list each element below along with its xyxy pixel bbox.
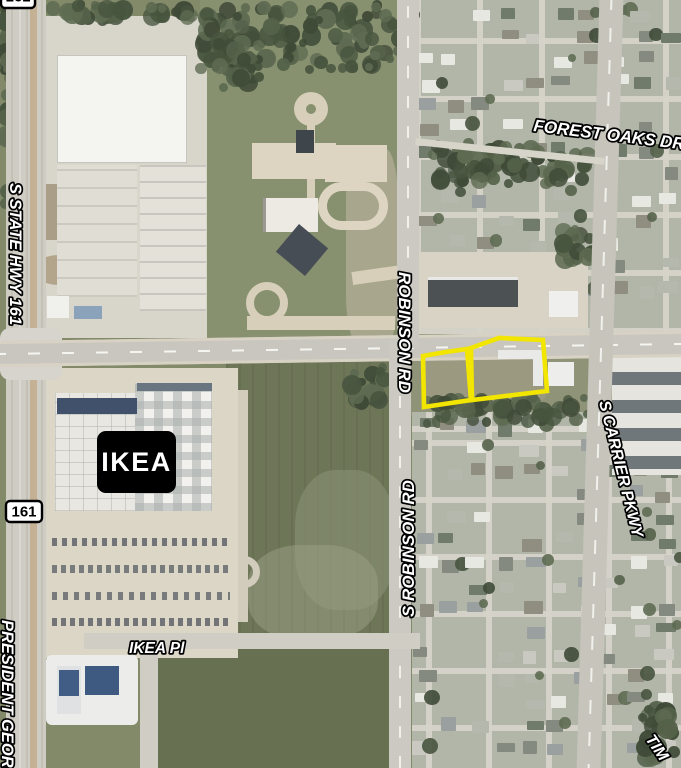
tree-canopy [535, 671, 544, 680]
tree-canopy [614, 575, 624, 585]
parking-car-row [52, 538, 230, 546]
house-roof [654, 649, 674, 660]
tree-canopy [46, 1, 60, 15]
tree-canopy [571, 225, 580, 234]
lane-dashes [399, 340, 401, 768]
house-roof [523, 651, 537, 664]
tree-canopy [575, 172, 589, 186]
lane-dashes [407, 0, 409, 348]
parking-car-row [52, 618, 230, 626]
tree-canopy [559, 717, 571, 729]
tree-canopy [485, 94, 494, 103]
tree-canopy [465, 116, 480, 131]
tree-canopy [254, 72, 264, 82]
hotel-blue-roof [59, 670, 79, 696]
house-roof [523, 741, 537, 754]
tree-strip-northwest [40, 0, 200, 26]
small-building [47, 296, 69, 318]
house-roof [524, 601, 543, 614]
tree-canopy [263, 18, 279, 34]
house-roof [503, 119, 522, 128]
tree-canopy [668, 746, 680, 758]
warehouse-building [57, 55, 187, 163]
tree-canopy [549, 168, 568, 187]
tree-canopy [431, 170, 451, 190]
house-roof [631, 556, 648, 569]
road-ikea-pl [84, 633, 420, 649]
house-roof [499, 557, 513, 571]
highway-161-corridor [6, 0, 46, 768]
tree-canopy [436, 77, 448, 89]
tree-canopy [362, 11, 373, 22]
campus-parking [252, 143, 336, 179]
tree-canopy [640, 666, 655, 681]
house-roof [659, 539, 676, 549]
tree-canopy [180, 10, 195, 25]
house-roof [497, 743, 515, 752]
house-roof [635, 625, 649, 637]
house-roof [438, 533, 452, 543]
house-roof [419, 670, 437, 682]
house-roof [661, 33, 681, 44]
house-roof [441, 54, 455, 65]
tree-canopy [482, 439, 494, 451]
house-roof [656, 515, 675, 524]
house-roof [448, 100, 464, 114]
townhouse-complex [612, 338, 681, 475]
tree-canopy [247, 64, 256, 73]
tree-canopy [462, 405, 475, 418]
tree-canopy [483, 582, 495, 594]
house-roof [630, 485, 643, 496]
tree-canopy [650, 144, 664, 158]
tree-canopy [672, 620, 681, 630]
house-roof [519, 445, 539, 456]
tree-canopy [647, 212, 657, 222]
house-roof [526, 34, 540, 43]
tree-canopy [504, 179, 513, 188]
house-roof [501, 8, 515, 18]
campus-parking [325, 145, 387, 182]
house-roof [522, 539, 542, 552]
lane-dashes [0, 343, 681, 355]
house-roof [630, 11, 650, 22]
house-roof [584, 51, 599, 64]
tree-canopy [340, 2, 359, 21]
house-roof [547, 744, 564, 756]
house-roof [441, 717, 456, 731]
house-roof [471, 463, 485, 474]
ikea-roof-edge [137, 383, 212, 391]
tree-canopy [386, 55, 395, 64]
tree-canopy [370, 51, 380, 61]
ikea-building-east [135, 383, 212, 511]
tree-canopy [542, 554, 554, 566]
house-roof [439, 601, 457, 613]
tree-canopy [424, 690, 440, 706]
tree-canopy [561, 122, 570, 131]
house-roof [552, 466, 569, 476]
highway-median [30, 0, 37, 768]
parking-car-row [52, 592, 230, 600]
house-roof [504, 80, 523, 92]
house-roof [632, 196, 651, 207]
house-roof [450, 235, 464, 246]
house-roof [527, 627, 545, 639]
tree-canopy [519, 162, 540, 183]
small-building [549, 291, 578, 317]
tree-canopy [98, 0, 116, 18]
tree-canopy [423, 419, 431, 427]
campus-building-white [263, 198, 318, 232]
house-roof [472, 721, 489, 732]
house-roof [551, 76, 571, 86]
ikea-loading-band [57, 398, 137, 414]
satellite-map[interactable]: S STATE HWY 161 PRESIDENT GEORGE ROBINSO… [0, 0, 681, 768]
tree-canopy [568, 54, 577, 63]
tree-canopy [471, 172, 488, 189]
house-roof [526, 78, 544, 87]
tree-canopy [376, 367, 385, 376]
house-roof [502, 30, 519, 39]
tree-canopy [544, 408, 562, 426]
tree-canopy [299, 39, 307, 47]
tree-clump-bottom-right [636, 698, 681, 768]
tree-canopy [219, 83, 228, 92]
house-roof [414, 440, 427, 450]
tree-canopy [437, 396, 452, 411]
house-roof [658, 281, 677, 293]
house-roof [639, 51, 654, 62]
industrial-parking [140, 165, 206, 311]
tree-canopy [328, 28, 343, 43]
tree-canopy [365, 32, 379, 46]
house-roof [527, 721, 544, 730]
tree-canopy [493, 153, 505, 165]
house-roof [417, 533, 434, 544]
tree-canopy [200, 7, 214, 21]
tree-canopy [113, 0, 133, 20]
tree-canopy [564, 647, 579, 662]
tree-canopy [574, 209, 588, 223]
tree-band-south-of-parcels [418, 392, 596, 428]
house-roof [419, 556, 437, 568]
campus-court [246, 282, 288, 324]
tree-canopy [195, 63, 206, 74]
house-roof [420, 124, 440, 136]
house-roof [499, 216, 514, 226]
house-roof [495, 466, 513, 479]
tree-canopy [273, 34, 287, 48]
house-roof [666, 77, 681, 90]
house-roof [655, 492, 669, 503]
road-robinson-north [397, 0, 419, 348]
house-roof [659, 193, 676, 203]
tree-canopy [479, 599, 488, 608]
road-robinson-south [389, 340, 411, 768]
tree-canopy [232, 69, 250, 87]
tree-canopy [536, 461, 545, 470]
house-roof [663, 258, 678, 267]
tree-clump-campus [210, 36, 266, 98]
house-roof [448, 469, 463, 481]
house-roof [659, 604, 675, 616]
house-roof [639, 122, 653, 134]
tree-canopy [345, 60, 358, 73]
tree-canopy [433, 213, 444, 224]
house-roof [474, 512, 491, 521]
house-roof [526, 700, 545, 709]
house-roof [523, 219, 540, 231]
tree-canopy [643, 603, 656, 616]
house-roof [640, 286, 654, 298]
tree-canopy [554, 234, 573, 253]
tree-canopy [253, 40, 264, 51]
tree-canopy [452, 393, 465, 406]
tree-canopy [674, 552, 681, 563]
tree-canopy [564, 401, 576, 413]
strip-mall-building [428, 277, 518, 307]
tree-canopy [241, 3, 251, 13]
parking-car-row [52, 565, 230, 573]
tree-canopy [277, 58, 290, 71]
house-roof [417, 98, 437, 110]
house-roof [472, 195, 487, 207]
tree-canopy [454, 164, 469, 179]
tree-canopy [490, 234, 503, 247]
drive-south-of-ikea-pl [140, 649, 158, 768]
tree-canopy [257, 1, 271, 15]
tree-canopy [72, 0, 83, 11]
house-roof [558, 8, 574, 20]
campus-loop-road [318, 182, 388, 230]
field-light-patch [248, 545, 378, 640]
house-roof [634, 77, 651, 90]
tree-canopy [642, 507, 651, 516]
house-roof [473, 10, 490, 22]
building-east-of-parcels [548, 362, 574, 386]
tree-canopy [371, 2, 381, 12]
tree-canopy [487, 172, 499, 184]
house-roof [420, 604, 435, 617]
house-roof [551, 696, 566, 708]
house-roof [498, 652, 514, 662]
house-roof [500, 582, 513, 593]
house-roof [665, 167, 679, 180]
campus-roundabout-center [306, 104, 316, 114]
house-roof [465, 557, 483, 568]
tree-canopy [515, 399, 532, 416]
tree-canopy [644, 528, 657, 541]
house-roof [556, 532, 573, 542]
tree-canopy [474, 393, 489, 408]
tree-canopy [281, 1, 298, 18]
house-roof [447, 511, 466, 523]
industrial-parking [57, 165, 137, 297]
tree-canopy [422, 738, 438, 754]
campus-building-dark [296, 130, 314, 153]
blue-roof-building [74, 306, 102, 319]
hotel-blue-roof [85, 666, 119, 695]
house-roof [553, 583, 567, 594]
tree-canopy [657, 719, 677, 739]
tree-canopy [370, 391, 388, 409]
tree-canopy [305, 65, 314, 74]
field-bottom-middle [150, 648, 396, 768]
house-roof [499, 674, 515, 687]
tree-canopy [507, 158, 522, 173]
tree-canopy [326, 64, 336, 74]
tree-canopy [237, 53, 251, 67]
